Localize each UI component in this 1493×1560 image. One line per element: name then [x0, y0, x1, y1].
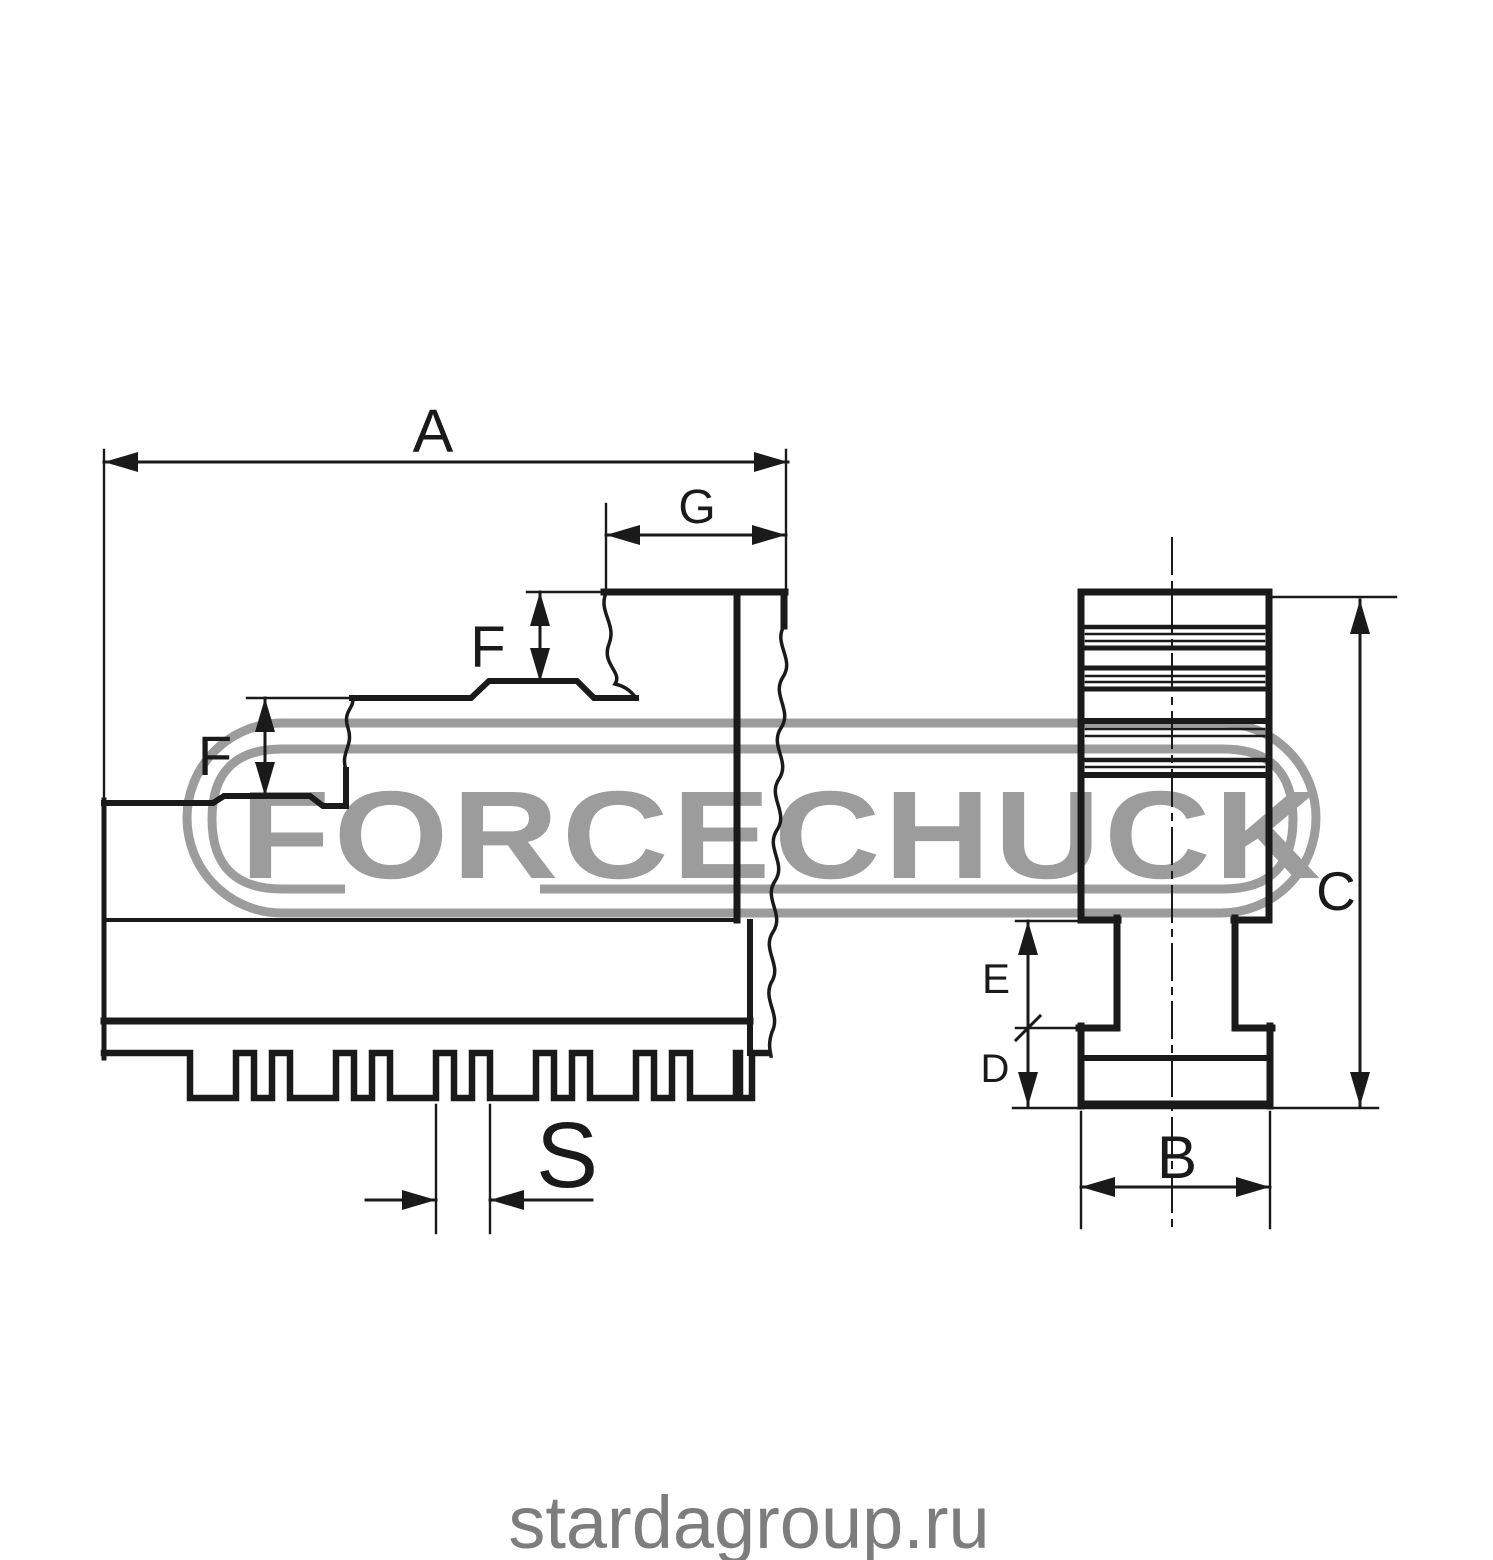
jaw-step2-profile [352, 681, 636, 698]
arrow-d-bottom [1018, 1072, 1038, 1106]
break-line-wavy-step1 [344, 697, 352, 770]
arrow-a-right [754, 452, 788, 472]
dimension-label-c: C [1316, 860, 1356, 922]
watermark-logo: FORCECHUCK [187, 723, 1324, 913]
dimension-label-f-upper: F [470, 615, 505, 680]
arrow-c-top [1350, 600, 1370, 634]
watermark-brand-text: FORCECHUCK [240, 765, 1324, 905]
arrow-s-right [490, 1190, 524, 1210]
arrow-s-left [402, 1190, 436, 1210]
arrow-f-upper-top [530, 592, 550, 626]
chuck-jaw-technical-drawing: FORCECHUCK [0, 0, 1493, 1560]
dimension-label-s: S [536, 1103, 598, 1207]
arrow-a-left [104, 452, 138, 472]
arrow-g-right [752, 525, 786, 545]
dimension-label-b: B [1157, 1124, 1197, 1191]
dimension-label-f-lower: F [198, 724, 232, 787]
arrow-b-right [1236, 1177, 1270, 1197]
serrated-bottom-edge [104, 1053, 766, 1098]
footer-website-text: stardagroup.ru [508, 1481, 989, 1560]
break-line-wavy-step2 [604, 593, 636, 698]
arrow-c-bottom [1350, 1072, 1370, 1106]
arrow-f-upper-bottom [530, 648, 550, 682]
arrow-e-top [1018, 921, 1038, 955]
arrow-f-lower-top [255, 698, 275, 732]
dimension-label-d: D [981, 1047, 1010, 1091]
dimension-label-e: E [982, 955, 1010, 1002]
arrow-b-left [1081, 1177, 1115, 1197]
chuck-jaw-drawing-page: FORCECHUCK [0, 0, 1493, 1560]
dimension-label-a: A [413, 397, 454, 465]
dimension-label-g: G [678, 481, 715, 534]
arrow-g-left [606, 525, 640, 545]
